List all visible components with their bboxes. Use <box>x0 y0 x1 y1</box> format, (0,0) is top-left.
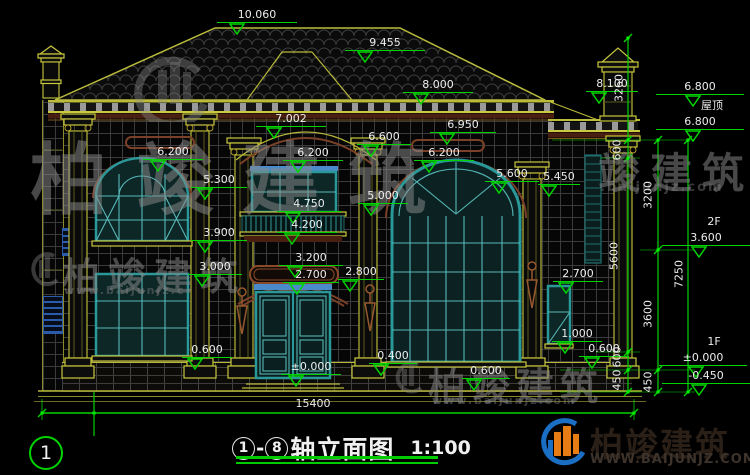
marker-triangle-icon <box>685 130 701 142</box>
elevation-value: 3.600 <box>662 231 750 244</box>
marker-triangle-icon <box>197 241 213 253</box>
elevation-marker: 屋顶 <box>690 99 734 112</box>
vertical-dimension: 600 <box>611 347 624 368</box>
elevation-value: ±0.000 <box>659 351 747 364</box>
title-underline-thick <box>236 456 438 459</box>
elevation-marker: 5.450 <box>537 170 581 185</box>
elevation-value: 5.300 <box>191 173 247 186</box>
elevation-marker: 6.200 <box>283 146 343 161</box>
elevation-value: 2.700 <box>553 267 603 280</box>
marker-triangle-icon <box>413 93 429 105</box>
elevation-value: 3.900 <box>191 226 247 239</box>
elevation-value: 6.800 <box>656 80 744 93</box>
overall-dimension: 15400 <box>288 397 338 410</box>
marker-triangle-icon <box>466 379 482 391</box>
elevation-marker: 2.700 <box>553 267 603 282</box>
elevation-marker: 3.600 <box>662 231 750 246</box>
marker-triangle-icon <box>439 133 455 145</box>
elevation-marker: 6.950 <box>430 118 496 133</box>
elevation-marker: 0.600 <box>182 343 232 358</box>
elevation-value: 0.600 <box>182 343 232 356</box>
company-logo-icon <box>538 416 588 472</box>
elevation-value: 6.200 <box>143 145 203 158</box>
elevation-marker: 2.800 <box>338 265 384 280</box>
elevation-marker: 8.000 <box>403 78 473 93</box>
elevation-value: 5.000 <box>358 189 408 202</box>
elevation-marker: 5.000 <box>358 189 408 204</box>
marker-triangle-icon <box>421 161 437 173</box>
marker-triangle-icon <box>363 145 379 157</box>
drawing-title: 1 - 8 轴立面图 1:100 <box>232 430 471 466</box>
elevation-value: 0.400 <box>369 349 417 362</box>
elevation-value: 3.200 <box>279 251 343 264</box>
elevation-value: 4.200 <box>277 218 337 231</box>
watermark-url-left: www.baijunjz.c <box>64 284 185 297</box>
elevation-marker: 4.750 <box>277 197 341 212</box>
elevation-marker: 6.200 <box>143 145 203 160</box>
elevation-value: 6.600 <box>357 130 411 143</box>
vertical-dimension: 450 <box>611 370 624 391</box>
elevation-value: 6.950 <box>430 118 496 131</box>
marker-triangle-icon <box>290 161 306 173</box>
cad-elevation-canvas: 柏竣建筑 柏竣建筑 www.baijunjz.c 竣建筑 .baijunjz.c… <box>0 0 750 475</box>
marker-triangle-icon <box>541 185 557 197</box>
elevation-value: 9.455 <box>345 36 425 49</box>
watermark-logo-bottom <box>390 358 426 400</box>
elevation-marker: 2.700 <box>283 268 339 283</box>
marker-triangle-icon <box>197 188 213 200</box>
elevation-marker: 7.002 <box>256 112 326 127</box>
marker-triangle-icon <box>266 127 282 139</box>
elevation-value: -0.450 <box>662 369 750 382</box>
vertical-dimension: 3200 <box>642 181 655 209</box>
vertical-dimension: 7250 <box>673 260 686 288</box>
elevation-value: 2.800 <box>338 265 384 278</box>
elevation-marker: 0.600 <box>462 364 510 379</box>
elevation-marker: -0.450 <box>662 369 750 384</box>
marker-triangle-icon <box>187 358 203 370</box>
elevation-marker: 10.060 <box>217 8 297 23</box>
elevation-marker: 4.200 <box>277 218 337 233</box>
elevation-value: 1.000 <box>552 327 602 340</box>
marker-triangle-icon <box>558 282 574 294</box>
watermark-logo-top <box>120 42 220 122</box>
elevation-value: 4.750 <box>277 197 341 210</box>
title-underline-thin <box>236 462 438 464</box>
elevation-value: 10.060 <box>217 8 297 21</box>
vertical-dimension: 5600 <box>608 242 621 270</box>
elevation-marker: 6.200 <box>414 146 474 161</box>
vertical-dimension: 3600 <box>642 300 655 328</box>
marker-triangle-icon <box>357 51 373 63</box>
marker-triangle-icon <box>363 204 379 216</box>
marker-triangle-icon <box>289 283 305 295</box>
elevation-value: 2.700 <box>283 268 339 281</box>
elevation-value: 3.000 <box>188 260 242 273</box>
elevation-value: 5.600 <box>485 167 539 180</box>
elevation-marker: 3.900 <box>191 226 247 241</box>
vertical-dimension: 600 <box>611 140 624 161</box>
elevation-value: 1F <box>692 335 736 348</box>
elevation-value: 7.002 <box>256 112 326 125</box>
marker-triangle-icon <box>150 160 166 172</box>
elevation-marker: 6.800 <box>656 80 744 95</box>
watermark-url-right: .baijunjz.com <box>600 180 724 195</box>
marker-triangle-icon <box>557 342 573 354</box>
elevation-value: 0.600 <box>462 364 510 377</box>
marker-triangle-icon <box>284 233 300 245</box>
elevation-value: 屋顶 <box>690 99 734 112</box>
cornice-dentils-wing <box>548 122 638 130</box>
elevation-marker: 1F <box>692 335 736 348</box>
marker-triangle-icon <box>288 375 304 387</box>
marker-triangle-icon <box>229 23 245 35</box>
watermark-url-bottom: www.baijunjz.com <box>432 394 576 407</box>
elevation-marker: 9.455 <box>345 36 425 51</box>
marker-triangle-icon <box>584 357 600 369</box>
elevation-marker: ±0.000 <box>659 351 747 366</box>
elevation-marker: 2F <box>692 215 736 228</box>
elevation-marker: 0.400 <box>369 349 417 364</box>
elevation-marker: 3.200 <box>279 251 343 266</box>
marker-triangle-icon <box>591 92 607 104</box>
marker-triangle-icon <box>491 182 507 194</box>
elevation-value: 5.450 <box>537 170 581 183</box>
axis-bubble-1: 1 <box>29 436 63 470</box>
elevation-marker: 5.600 <box>485 167 539 182</box>
elevation-value: 8.000 <box>403 78 473 91</box>
louver-vent <box>43 296 63 334</box>
marker-triangle-icon <box>194 275 210 287</box>
elevation-marker: 5.300 <box>191 173 247 188</box>
elevation-value: 6.800 <box>656 115 744 128</box>
marker-triangle-icon <box>691 384 707 396</box>
marker-triangle-icon <box>342 280 358 292</box>
marker-triangle-icon <box>691 246 707 258</box>
elevation-value: 6.200 <box>283 146 343 159</box>
marker-triangle-icon <box>373 364 389 376</box>
elevation-value: 6.200 <box>414 146 474 159</box>
vertical-dimension: 3260 <box>613 74 626 102</box>
elevation-marker: 3.000 <box>188 260 242 275</box>
elevation-marker: 6.600 <box>357 130 411 145</box>
title-text: 轴立面图 <box>290 430 394 466</box>
elevation-marker: ±0.000 <box>281 360 341 375</box>
vertical-dimension: 450 <box>642 372 655 393</box>
watermark-logo-left <box>26 248 62 292</box>
elevation-marker: 6.800 <box>656 115 744 130</box>
company-logo-site: WWW.BAIJUNJZ.COM <box>590 452 750 467</box>
elevation-marker: 1.000 <box>552 327 602 342</box>
elevation-value: 2F <box>692 215 736 228</box>
elevation-value: ±0.000 <box>281 360 341 373</box>
